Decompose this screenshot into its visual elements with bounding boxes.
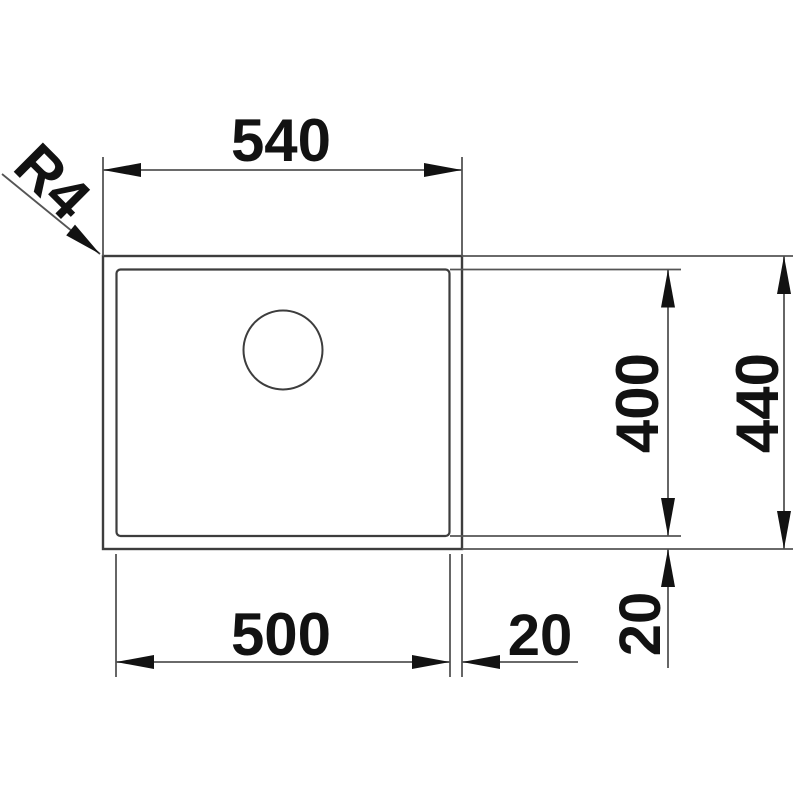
sink-bowl-inner-edge — [117, 270, 450, 537]
arrowheads-group — [66, 163, 791, 669]
dim-label-440: 440 — [724, 353, 791, 453]
sink-dimension-drawing: 540 500 20 400 440 20 R4 — [0, 0, 800, 800]
sink-outline-group — [103, 256, 462, 549]
arrow-400-bottom — [661, 498, 675, 536]
arrow-440-top — [777, 256, 791, 294]
arrow-540-left — [103, 163, 141, 177]
arrow-r4-leader — [66, 225, 100, 254]
dim-label-500: 500 — [231, 601, 331, 668]
drain-hole — [244, 311, 323, 390]
arrow-500-right — [412, 655, 450, 669]
arrow-20-vertical — [661, 549, 675, 587]
dim-label-540: 540 — [231, 107, 331, 174]
dim-label-20-horizontal: 20 — [508, 603, 573, 668]
dim-label-20-vertical: 20 — [608, 592, 673, 657]
sink-outer-edge — [103, 256, 462, 549]
technical-drawing-canvas: 540 500 20 400 440 20 R4 — [0, 0, 800, 800]
radius-label-r4: R4 — [2, 131, 104, 233]
arrow-440-bottom — [777, 511, 791, 549]
arrow-540-right — [424, 163, 462, 177]
dimension-lines-group — [2, 157, 793, 677]
dim-label-400: 400 — [604, 353, 671, 453]
arrow-20-horizontal — [462, 655, 500, 669]
arrow-500-left — [116, 655, 154, 669]
arrow-400-top — [661, 270, 675, 308]
